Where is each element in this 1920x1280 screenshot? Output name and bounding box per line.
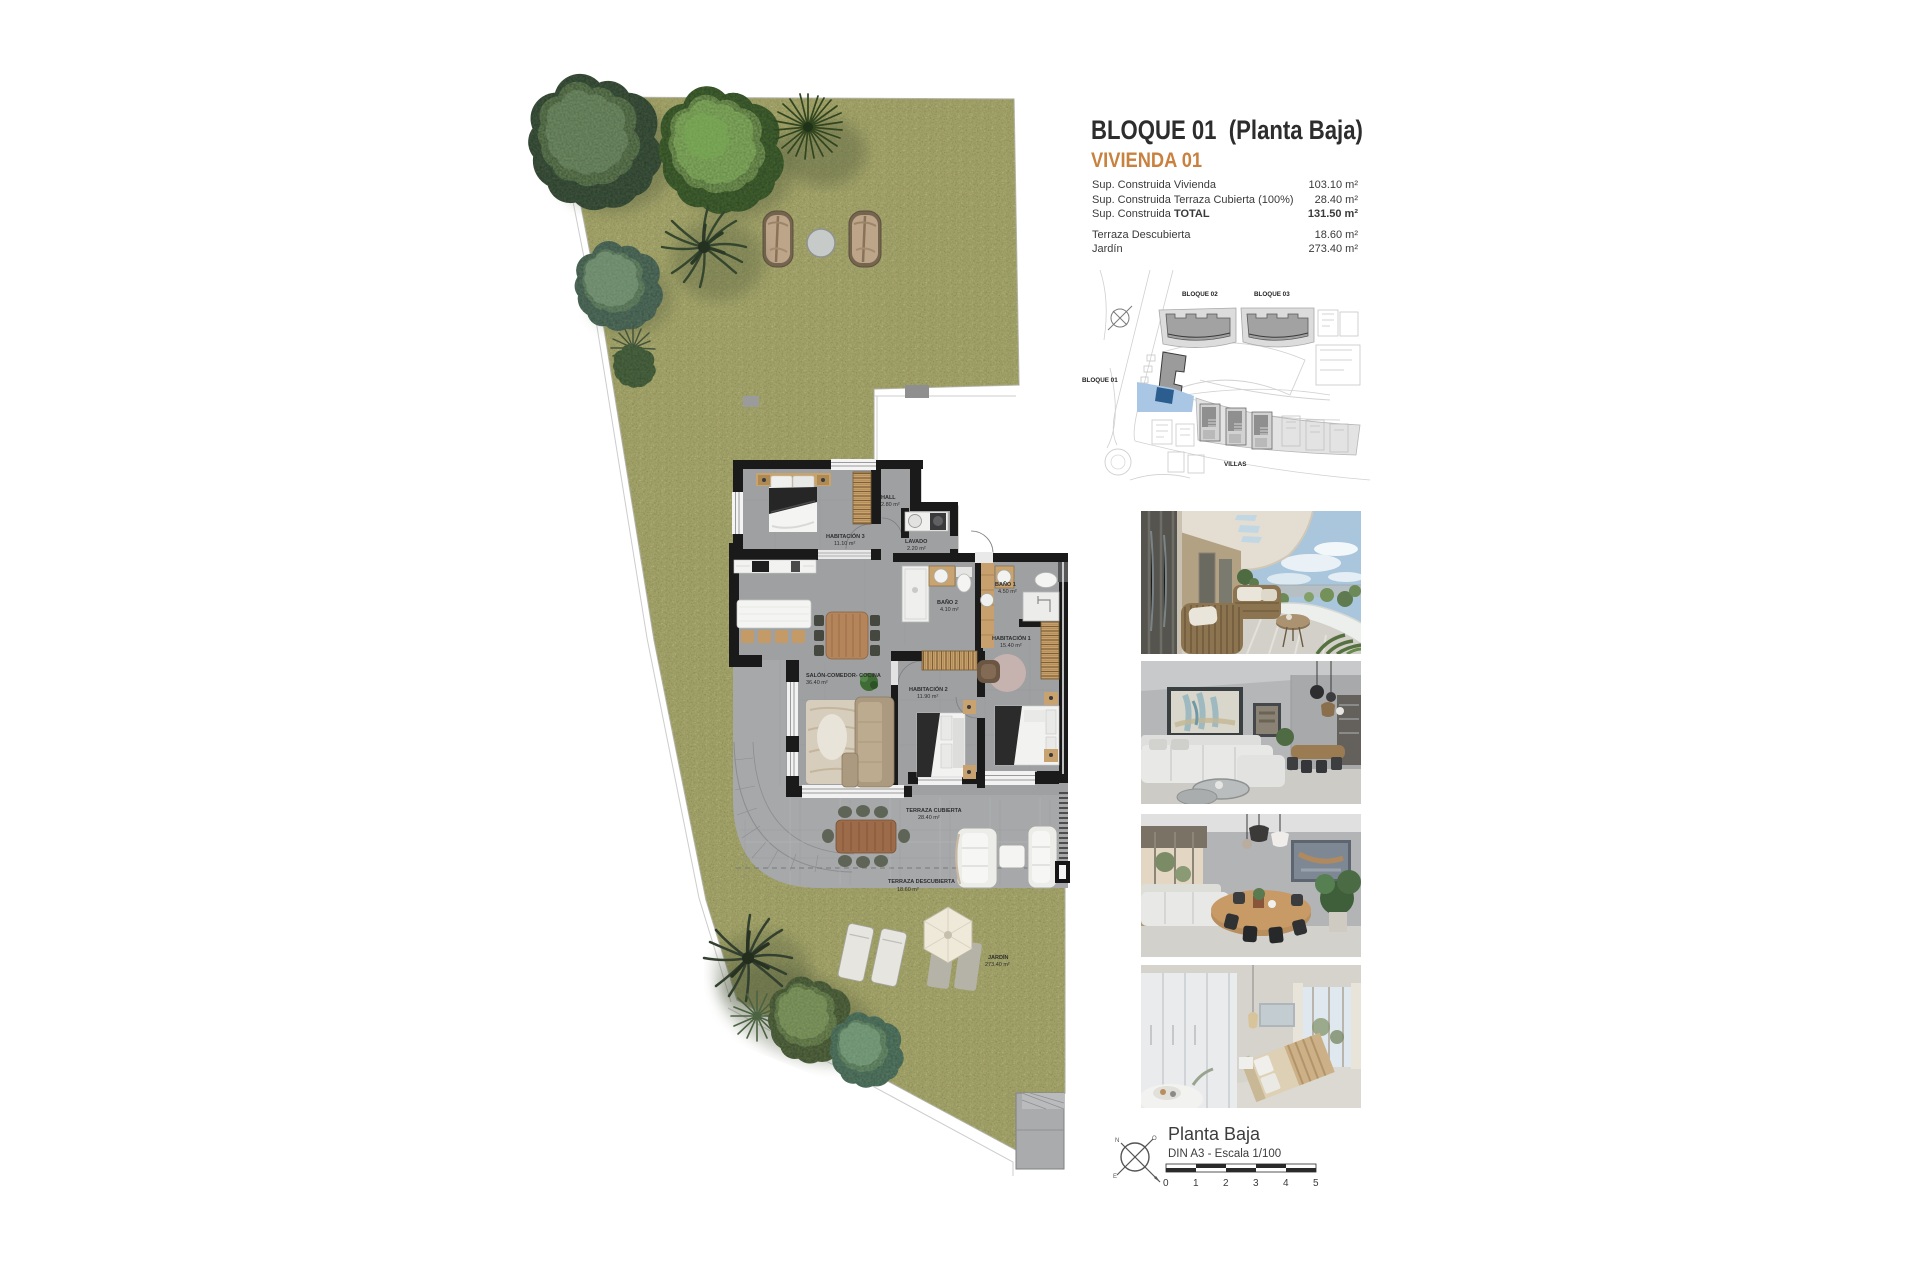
svg-text:3: 3 xyxy=(1253,1178,1259,1189)
svg-text:2.80 m²: 2.80 m² xyxy=(881,502,900,508)
svg-text:O: O xyxy=(1152,1136,1157,1142)
svg-text:HALL: HALL xyxy=(881,495,896,501)
svg-text:18.60 m²: 18.60 m² xyxy=(897,887,919,893)
svg-text:TERRAZA DESCUBIERTA: TERRAZA DESCUBIERTA xyxy=(888,879,955,885)
svg-text:2: 2 xyxy=(1223,1178,1229,1189)
svg-text:JARDÍN: JARDÍN xyxy=(988,953,1009,961)
svg-text:BLOQUE 01: BLOQUE 01 xyxy=(1082,377,1118,384)
svg-text:15.40 m²: 15.40 m² xyxy=(1000,643,1022,649)
svg-text:VILLAS: VILLAS xyxy=(1224,461,1246,468)
svg-text:4.50 m²: 4.50 m² xyxy=(998,589,1017,595)
svg-text:TERRAZA CUBIERTA: TERRAZA CUBIERTA xyxy=(906,808,962,814)
svg-text:BLOQUE 02: BLOQUE 02 xyxy=(1182,291,1218,298)
svg-text:28.40 m²: 28.40 m² xyxy=(918,815,940,821)
svg-text:2.20 m²: 2.20 m² xyxy=(907,546,926,552)
svg-text:E: E xyxy=(1113,1174,1117,1180)
svg-text:4.10 m²: 4.10 m² xyxy=(940,607,959,613)
svg-text:N: N xyxy=(1115,1138,1119,1144)
svg-text:36.40 m²: 36.40 m² xyxy=(806,680,828,686)
svg-text:HABITACIÓN 3: HABITACIÓN 3 xyxy=(826,532,865,540)
svg-text:11.90 m²: 11.90 m² xyxy=(917,694,938,700)
svg-text:1: 1 xyxy=(1193,1178,1199,1189)
svg-text:HABITACIÓN 1: HABITACIÓN 1 xyxy=(992,634,1031,642)
svg-text:LAVADO: LAVADO xyxy=(905,539,928,545)
svg-text:BLOQUE 03: BLOQUE 03 xyxy=(1254,291,1290,298)
svg-text:BAÑO 1: BAÑO 1 xyxy=(995,581,1016,588)
svg-text:273.40 m²: 273.40 m² xyxy=(985,962,1010,968)
svg-text:BAÑO 2: BAÑO 2 xyxy=(937,599,958,606)
svg-text:11.10 m²: 11.10 m² xyxy=(834,541,855,547)
svg-text:5: 5 xyxy=(1313,1178,1319,1189)
svg-text:4: 4 xyxy=(1283,1178,1289,1189)
svg-text:SALÓN-COMEDOR- COCINA: SALÓN-COMEDOR- COCINA xyxy=(806,671,881,679)
svg-text:HABITACIÓN 2: HABITACIÓN 2 xyxy=(909,685,948,693)
